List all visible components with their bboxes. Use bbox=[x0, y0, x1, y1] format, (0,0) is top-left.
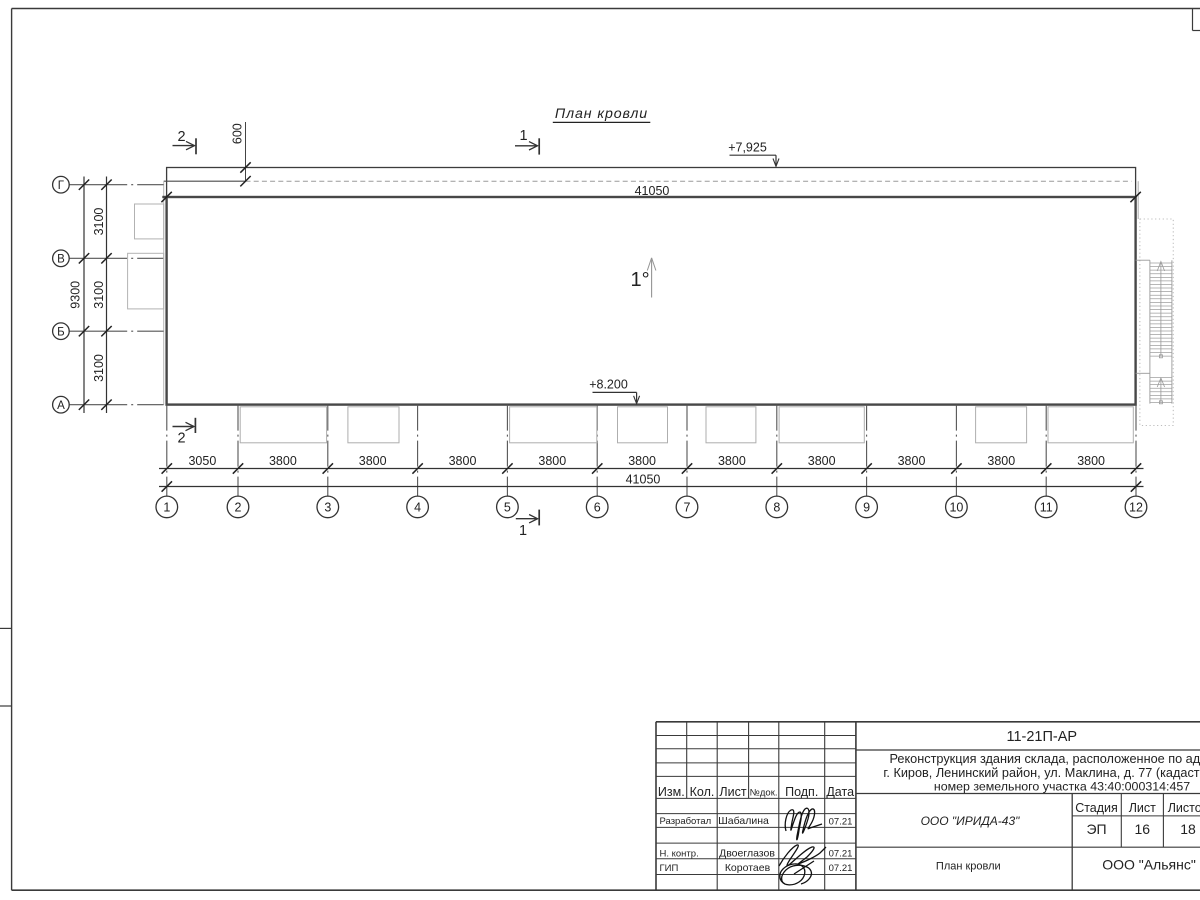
svg-text:18: 18 bbox=[1180, 821, 1196, 837]
svg-text:3800: 3800 bbox=[628, 454, 656, 468]
svg-text:1: 1 bbox=[519, 523, 527, 539]
svg-text:Коротаев: Коротаев bbox=[725, 862, 771, 874]
svg-text:Изм.: Изм. bbox=[658, 785, 685, 799]
svg-text:11-21П-АР: 11-21П-АР bbox=[1006, 729, 1077, 745]
svg-text:16: 16 bbox=[1135, 821, 1151, 837]
svg-text:ООО "ИРИДА-43": ООО "ИРИДА-43" bbox=[921, 814, 1021, 828]
svg-text:2: 2 bbox=[177, 129, 185, 145]
svg-text:07.21: 07.21 bbox=[829, 863, 853, 874]
svg-text:1: 1 bbox=[163, 500, 170, 514]
svg-text:8: 8 bbox=[773, 500, 780, 514]
svg-text:ГИП: ГИП bbox=[660, 863, 679, 874]
svg-text:07.21: 07.21 bbox=[829, 816, 853, 827]
svg-text:ЭП: ЭП bbox=[1086, 821, 1106, 837]
svg-text:3050: 3050 bbox=[188, 454, 216, 468]
svg-text:Стадия: Стадия bbox=[1075, 801, 1118, 815]
svg-text:План кровли: План кровли bbox=[555, 106, 648, 122]
svg-text:3100: 3100 bbox=[92, 208, 106, 236]
svg-text:6: 6 bbox=[594, 500, 601, 514]
svg-text:Разработал: Разработал bbox=[660, 816, 712, 827]
svg-text:4: 4 bbox=[414, 500, 421, 514]
svg-text:Дата: Дата bbox=[826, 785, 854, 799]
svg-text:г. Киров, Ленинский район, ул.: г. Киров, Ленинский район, ул. Маклина, … bbox=[883, 766, 1200, 780]
svg-text:3800: 3800 bbox=[538, 454, 566, 468]
svg-text:7: 7 bbox=[684, 500, 691, 514]
svg-text:3800: 3800 bbox=[269, 454, 297, 468]
svg-text:+7,925: +7,925 bbox=[728, 141, 767, 155]
svg-text:Шабалина: Шабалина bbox=[718, 815, 769, 827]
svg-text:3800: 3800 bbox=[359, 454, 387, 468]
svg-text:А: А bbox=[57, 400, 65, 412]
svg-text:номер земельного участка 43:40: номер земельного участка 43:40:000314:45… bbox=[934, 780, 1190, 794]
svg-text:Г: Г bbox=[58, 180, 65, 192]
svg-text:1: 1 bbox=[519, 128, 527, 144]
svg-text:41050: 41050 bbox=[635, 184, 670, 198]
svg-text:3100: 3100 bbox=[92, 281, 106, 309]
svg-text:9300: 9300 bbox=[68, 281, 82, 309]
svg-text:07.21: 07.21 bbox=[829, 849, 853, 860]
svg-text:В: В bbox=[57, 253, 65, 265]
svg-text:Подп.: Подп. bbox=[785, 785, 818, 799]
svg-text:2: 2 bbox=[235, 500, 242, 514]
svg-text:3800: 3800 bbox=[718, 454, 746, 468]
svg-text:9: 9 bbox=[863, 500, 870, 514]
svg-text:3800: 3800 bbox=[987, 454, 1015, 468]
svg-text:Лист: Лист bbox=[1129, 801, 1156, 815]
svg-text:3800: 3800 bbox=[449, 454, 477, 468]
svg-text:ООО "Альянс": ООО "Альянс" bbox=[1102, 857, 1196, 873]
svg-text:Лист: Лист bbox=[719, 785, 746, 799]
svg-text:3800: 3800 bbox=[808, 454, 836, 468]
svg-text:2: 2 bbox=[178, 431, 186, 447]
svg-text:1°: 1° bbox=[631, 269, 650, 291]
svg-text:3100: 3100 bbox=[92, 354, 106, 382]
svg-text:+8.200: +8.200 bbox=[589, 378, 628, 392]
svg-text:Кол.: Кол. bbox=[690, 785, 715, 799]
svg-text:План кровли: План кровли bbox=[936, 860, 1001, 872]
svg-text:11: 11 bbox=[1040, 500, 1053, 514]
svg-text:Н. контр.: Н. контр. bbox=[660, 848, 699, 859]
svg-text:12: 12 bbox=[1129, 500, 1143, 514]
svg-text:Двоеглазов: Двоеглазов bbox=[719, 847, 775, 859]
svg-text:3800: 3800 bbox=[1077, 454, 1105, 468]
svg-text:3800: 3800 bbox=[898, 454, 926, 468]
svg-text:41050: 41050 bbox=[626, 473, 661, 487]
svg-text:10: 10 bbox=[949, 500, 963, 514]
svg-text:5: 5 bbox=[504, 500, 511, 514]
svg-text:600: 600 bbox=[231, 123, 245, 144]
svg-text:Б: Б bbox=[57, 326, 65, 338]
svg-text:Реконструкция здания склада, р: Реконструкция здания склада, расположенн… bbox=[890, 752, 1200, 766]
svg-text:3: 3 bbox=[324, 500, 331, 514]
svg-text:№док.: №док. bbox=[750, 788, 778, 799]
svg-text:Листов: Листов bbox=[1168, 801, 1200, 815]
